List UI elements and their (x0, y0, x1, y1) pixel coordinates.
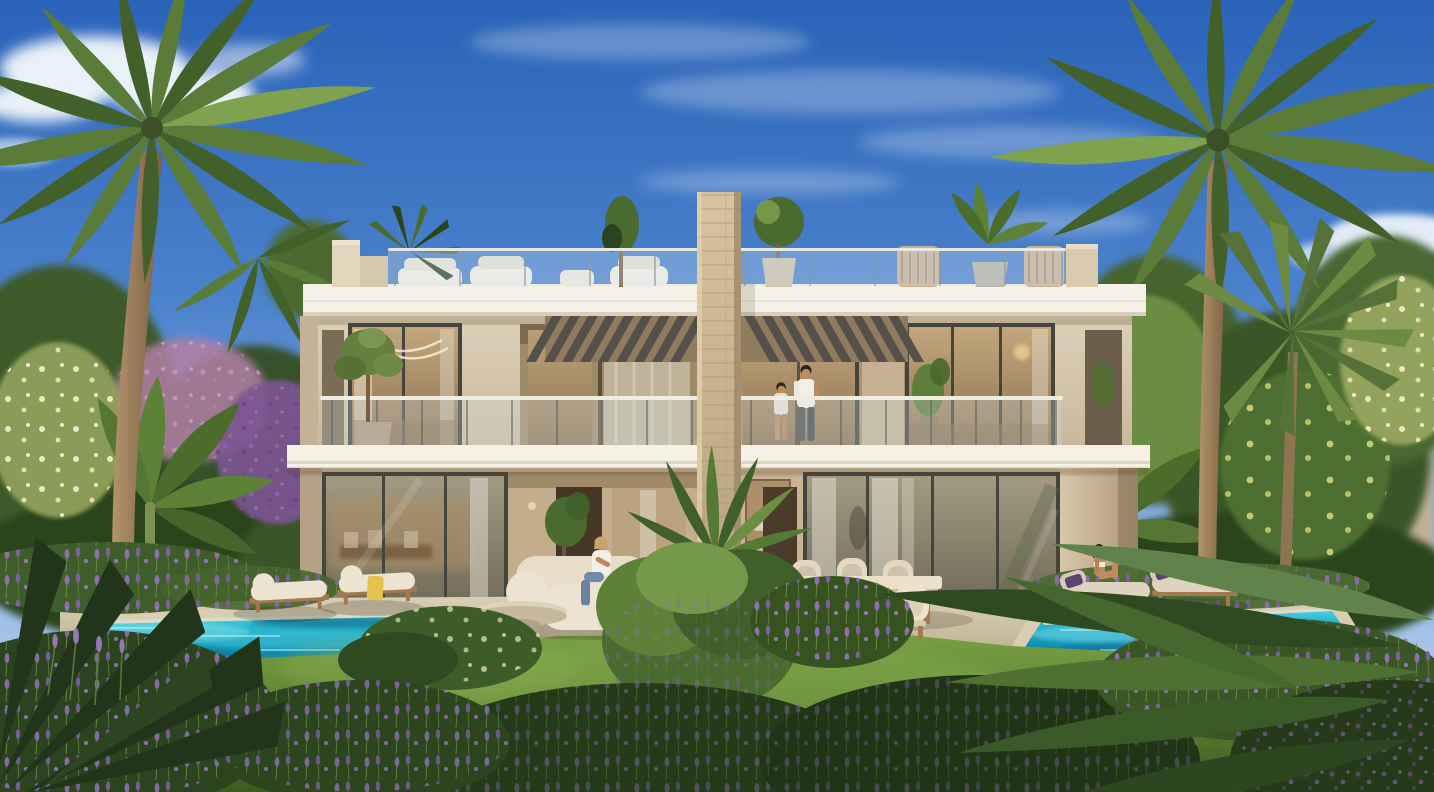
glass-balustrade-right (739, 396, 1063, 451)
pergola-left (526, 316, 706, 362)
render-canvas (0, 0, 1434, 792)
lavender-bed-mid-right (750, 576, 914, 668)
roof-parapet-right (1066, 244, 1098, 287)
pergola-right (741, 316, 924, 362)
towel (367, 576, 384, 601)
villa-render-image (0, 0, 1434, 792)
